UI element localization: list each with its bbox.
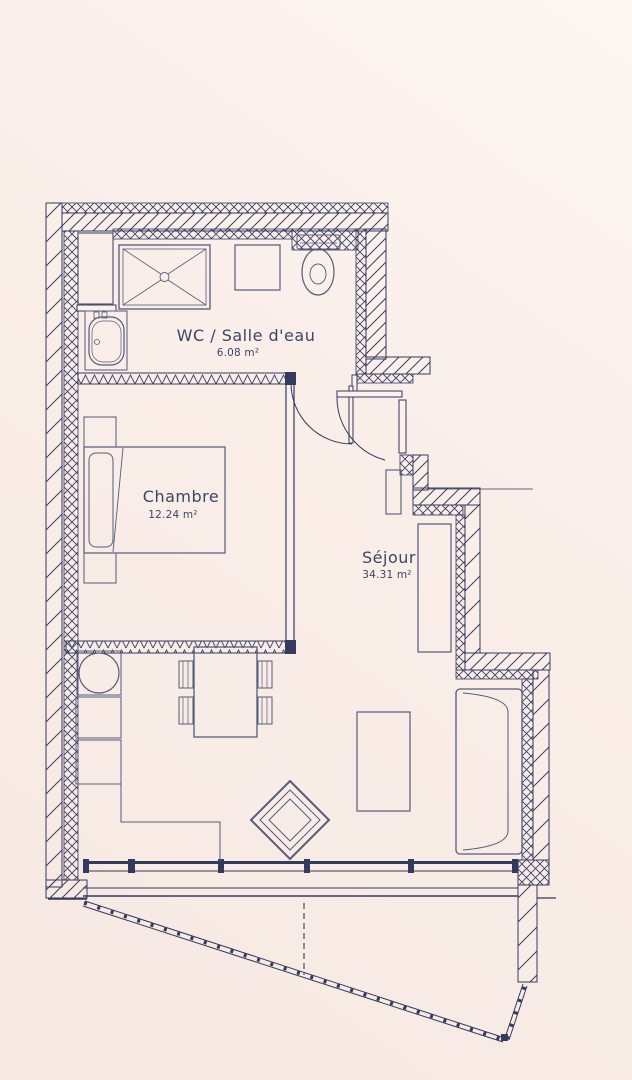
- doors: [291, 383, 406, 460]
- wall-top-insulation: [62, 203, 388, 213]
- toilet-bowl: [302, 249, 334, 295]
- bed-sheet-fold: [113, 448, 123, 552]
- dining-chair: [258, 661, 272, 688]
- exterior-walls: [46, 203, 556, 982]
- sejour-room-name: Séjour: [362, 548, 416, 567]
- window-mullion: [218, 859, 224, 873]
- dining-chair: [179, 697, 193, 724]
- kitchen-cabinet: [76, 740, 121, 784]
- coffee-table: [357, 712, 410, 811]
- railing-inner-line: [83, 906, 503, 1042]
- railing-return-outer: [505, 984, 523, 1038]
- wall-step2-hatch: [465, 653, 550, 670]
- wall-chambre-partition: [286, 383, 294, 645]
- wall-step1-hatch: [413, 488, 480, 505]
- wall-corner-bottom-left: [46, 880, 87, 898]
- wall-step1-insulation: [413, 505, 463, 515]
- interior-walls: [66, 305, 357, 654]
- wall-entry-top-hatch: [366, 357, 430, 374]
- entry-door-leaf-closed: [399, 400, 406, 453]
- wall-ledge-shower: [113, 229, 292, 239]
- kitchen-sink: [77, 651, 121, 695]
- wall-right-insulation: [522, 679, 533, 860]
- chambre-room-area: 12.24 m²: [148, 509, 197, 521]
- wall-sejour-right-hatch: [465, 505, 480, 653]
- wall-wc-right-insulation: [356, 229, 366, 374]
- washbasin: [85, 311, 127, 370]
- nightstand-top: [84, 417, 116, 447]
- dining-chair: [179, 661, 193, 688]
- shower-drain: [160, 273, 169, 282]
- chambre-room-name: Chambre: [143, 487, 219, 506]
- window-mullion: [83, 859, 89, 873]
- entry-door-leaf-open: [337, 391, 402, 397]
- dining-table: [194, 647, 257, 737]
- wall-sejour-right-insulation: [456, 515, 465, 670]
- bed-pillow: [89, 453, 113, 547]
- window-bay: [83, 859, 518, 896]
- window-inner-face: [83, 861, 518, 864]
- shower-tray: [119, 245, 210, 309]
- railing-outer-line: [85, 901, 505, 1038]
- floor-plan: WC / Salle d'eau 6.08 m² Chambre 12.24 m…: [0, 0, 632, 1080]
- wc-room-name: WC / Salle d'eau: [177, 326, 316, 345]
- room-wc-salle-deau: WC / Salle d'eau 6.08 m²: [78, 233, 340, 370]
- railing-return-posts: [507, 985, 525, 1039]
- entry-cabinet: [386, 470, 401, 514]
- washing-machine: [235, 245, 280, 290]
- wall-stub-below: [518, 885, 537, 982]
- railing-corner: [501, 1034, 508, 1041]
- wall-wc-bottom: [78, 373, 292, 384]
- window-mullion: [408, 859, 414, 873]
- window-mullion: [512, 859, 518, 873]
- washbasin-drain: [95, 340, 100, 345]
- railing-posts: [84, 903, 504, 1040]
- balcony: [83, 901, 527, 1042]
- wall-ledge-toilet: [292, 229, 358, 250]
- wall-wc-right-hatch: [366, 229, 386, 359]
- window-mullion: [128, 859, 135, 873]
- railing-return-inner: [509, 986, 527, 1040]
- wall-right-hatch: [533, 670, 549, 860]
- room-sejour: Séjour 34.31 m²: [76, 470, 522, 861]
- room-chambre: Chambre 12.24 m²: [84, 417, 225, 583]
- wall-entry-top-insulation: [356, 374, 413, 383]
- wall-entry-right-hatch: [413, 455, 428, 490]
- sejour-room-area: 34.31 m²: [362, 569, 411, 581]
- tall-cabinet: [418, 524, 451, 652]
- wc-room-area: 6.08 m²: [217, 347, 260, 359]
- nightstand-bottom: [84, 553, 116, 583]
- duct-divider: [77, 305, 116, 311]
- wall-entry-jamb: [400, 455, 413, 475]
- dining-chair: [258, 697, 272, 724]
- pouf: [251, 781, 329, 859]
- wall-step2-insulation: [456, 670, 538, 679]
- partition-post-bottom: [285, 640, 296, 654]
- wall-top-hatch: [62, 213, 388, 231]
- wall-left-hatch: [46, 203, 62, 887]
- sofa: [456, 689, 522, 854]
- window-mullion: [304, 859, 310, 873]
- wall-corner-bottom-right: [518, 860, 549, 885]
- entry-door-swing-arc: [337, 397, 385, 460]
- duct-shaft: [78, 233, 113, 304]
- kitchen-cabinet: [76, 697, 121, 738]
- kitchen-zone-line: [121, 784, 220, 861]
- sofa-backrest: [463, 693, 508, 850]
